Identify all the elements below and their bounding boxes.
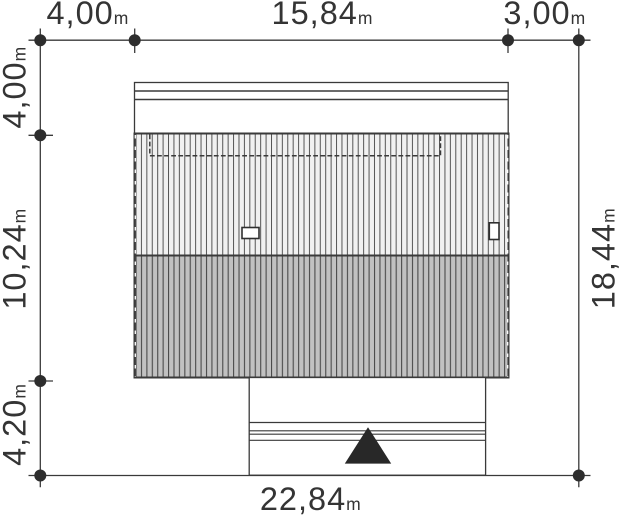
svg-text:10,24m: 10,24m: [0, 209, 33, 310]
svg-text:22,84m: 22,84m: [260, 481, 361, 516]
svg-text:18,44m: 18,44m: [586, 208, 620, 309]
svg-text:15,84m: 15,84m: [272, 0, 373, 31]
